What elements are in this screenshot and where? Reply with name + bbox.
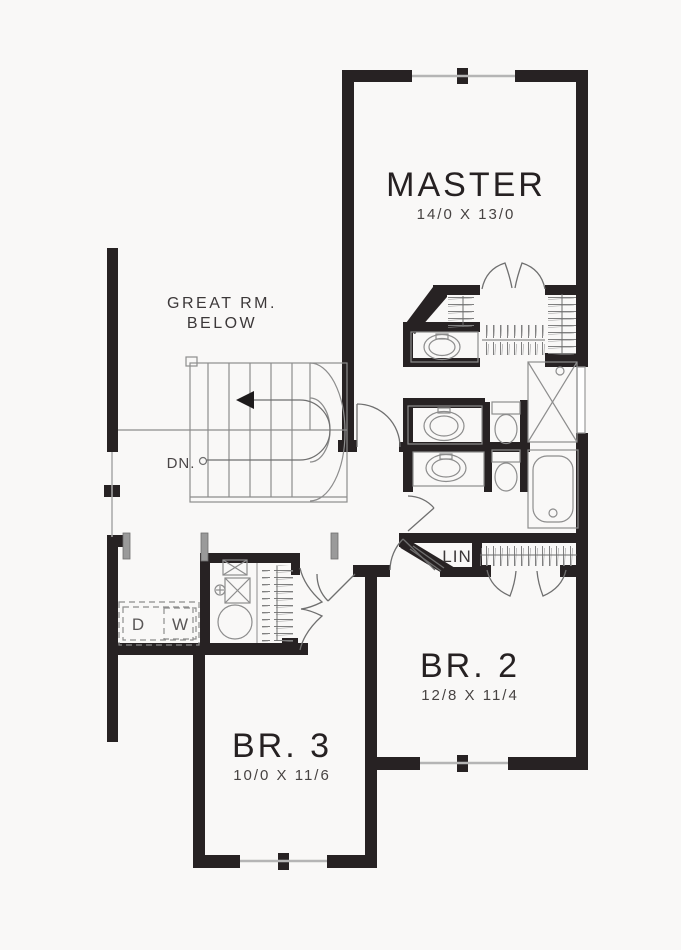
- dryer-label: D: [132, 615, 144, 634]
- master-closet-doors: [482, 263, 545, 289]
- great-room-label-line1: GREAT RM.: [167, 295, 277, 312]
- master-door: [357, 404, 400, 447]
- floor-plan-drawing: MASTER 14/0 X 13/0 GREAT RM. BELOW DN. L…: [0, 0, 681, 950]
- bath-door: [408, 496, 434, 531]
- bathtub: [528, 450, 578, 528]
- stair-arrow-icon: [236, 391, 254, 409]
- br3-door: [317, 574, 355, 601]
- br2-closet-doors: [487, 570, 566, 596]
- br3-room-label: BR. 3: [232, 727, 332, 765]
- utility-equipment: [215, 560, 252, 639]
- master-room-dims: 14/0 X 13/0: [417, 206, 516, 223]
- stairs-down-label: DN.: [167, 455, 196, 472]
- water-heater: [218, 605, 252, 639]
- toilet: [492, 402, 520, 444]
- br3-closet-doors: [300, 568, 322, 650]
- br2-room-label: BR. 2: [420, 647, 520, 685]
- master-room-label: MASTER: [386, 166, 546, 204]
- toilet: [492, 450, 520, 491]
- great-room-label-line2: BELOW: [187, 315, 257, 332]
- br3-room-dims: 10/0 X 11/6: [233, 767, 331, 784]
- washer-label: W: [172, 615, 188, 634]
- closet-hanging-areas: [257, 293, 577, 643]
- shower: [528, 362, 577, 442]
- linen-closet-label: LIN: [442, 547, 471, 566]
- staircase: [118, 357, 347, 502]
- vanity-sink: [411, 332, 478, 362]
- br2-room-dims: 12/8 X 11/4: [421, 687, 519, 704]
- vanity-sink: [408, 406, 482, 444]
- vanity-sink: [413, 452, 484, 486]
- floor-plan-page: MASTER 14/0 X 13/0 GREAT RM. BELOW DN. L…: [0, 0, 681, 950]
